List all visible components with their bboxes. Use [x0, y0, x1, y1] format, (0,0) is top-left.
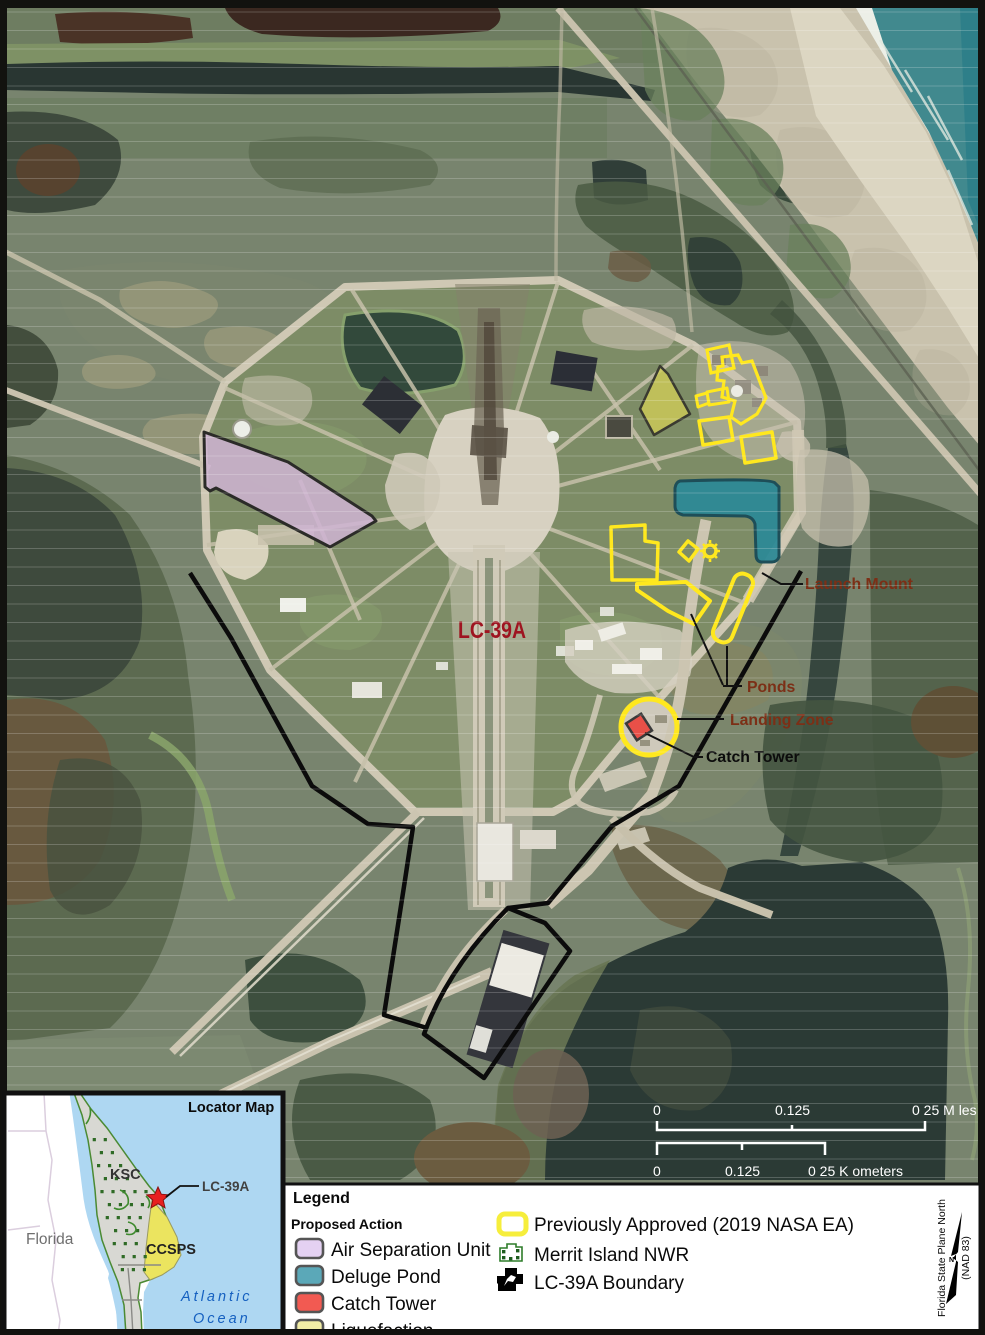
svg-text:CCSPS: CCSPS: [146, 1242, 196, 1258]
svg-text:(NAD 83): (NAD 83): [960, 1236, 972, 1280]
svg-text:0.125: 0.125: [725, 1163, 760, 1179]
svg-text:KSC: KSC: [110, 1167, 141, 1183]
svg-text:0.125: 0.125: [775, 1102, 810, 1118]
svg-text:Florida: Florida: [26, 1231, 74, 1248]
svg-text:Merrit Island NWR: Merrit Island NWR: [534, 1245, 689, 1266]
svg-text:Ponds: Ponds: [747, 679, 795, 696]
svg-text:Proposed Action: Proposed Action: [291, 1216, 403, 1232]
svg-text:N: N: [949, 1257, 954, 1264]
svg-text:Launch Mount: Launch Mount: [805, 576, 914, 593]
svg-text:Air Separation Unit: Air Separation Unit: [331, 1240, 491, 1261]
svg-text:Catch Tower: Catch Tower: [331, 1294, 437, 1315]
svg-text:0 25 M les: 0 25 M les: [912, 1102, 977, 1118]
svg-text:LC-39A Boundary: LC-39A Boundary: [534, 1273, 684, 1294]
svg-text:Atlantic: Atlantic: [180, 1289, 253, 1305]
svg-text:Florida State Plane North: Florida State Plane North: [936, 1199, 948, 1317]
svg-text:0: 0: [653, 1163, 661, 1179]
svg-text:0: 0: [653, 1102, 661, 1118]
svg-text:Ocean: Ocean: [193, 1311, 251, 1327]
svg-text:Locator Map: Locator Map: [188, 1100, 274, 1116]
svg-text:Previously Approved (2019 NASA: Previously Approved (2019 NASA EA): [534, 1215, 854, 1236]
svg-text:Deluge Pond: Deluge Pond: [331, 1267, 441, 1288]
svg-text:LC-39A: LC-39A: [458, 617, 526, 644]
svg-text:LC-39A: LC-39A: [202, 1179, 250, 1194]
svg-text:Legend: Legend: [293, 1190, 350, 1207]
svg-text:0 25 K ometers: 0 25 K ometers: [808, 1163, 903, 1179]
